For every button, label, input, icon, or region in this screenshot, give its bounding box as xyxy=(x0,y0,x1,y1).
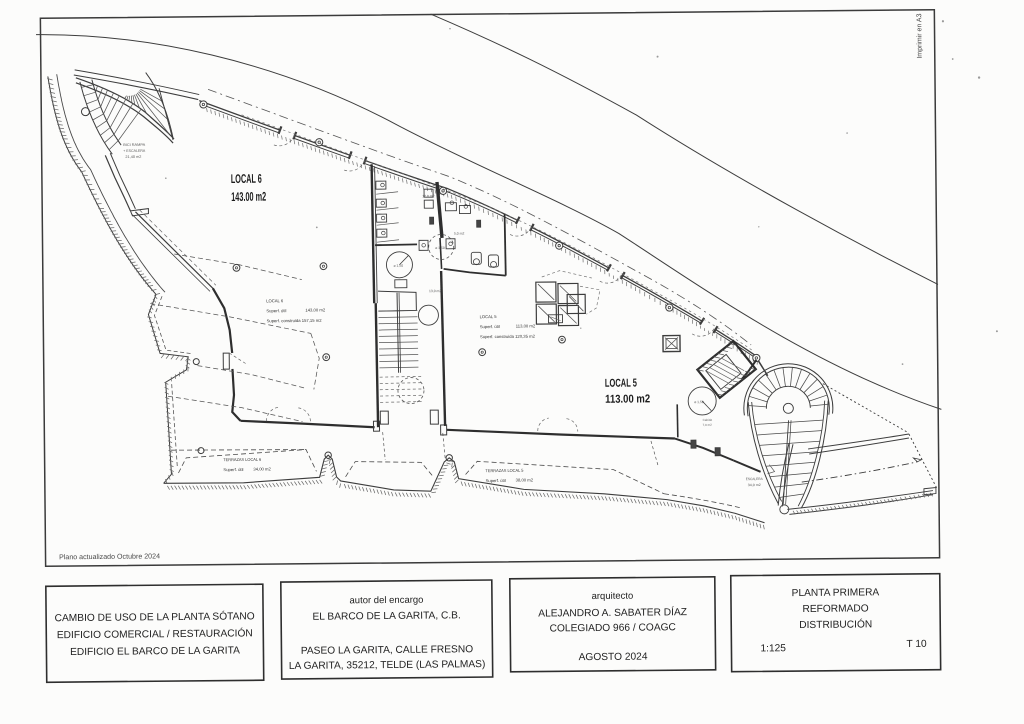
svg-text:143,00 m2: 143,00 m2 xyxy=(305,307,326,312)
svg-text:113.00 m2: 113.00 m2 xyxy=(605,393,650,405)
svg-text:38,00 m2: 38,00 m2 xyxy=(516,477,534,482)
svg-text:Superf. útil: Superf. útil xyxy=(480,324,500,329)
svg-text:Superf. construida 120,35 m2: Superf. construida 120,35 m2 xyxy=(480,334,536,340)
svg-text:T 10: T 10 xyxy=(906,639,927,650)
svg-text:LOCAL 6: LOCAL 6 xyxy=(231,172,262,186)
svg-text:TERRAZAS LOCAL 6: TERRAZAS LOCAL 6 xyxy=(223,457,262,462)
svg-text:5,0 m2: 5,0 m2 xyxy=(454,232,465,236)
svg-text:13,0 m2: 13,0 m2 xyxy=(429,289,441,293)
svg-text:Superf. construida 157,15 m2: Superf. construida 157,15 m2 xyxy=(267,318,323,324)
svg-text:PASEO LA GARITA, CALLE FRESNO: PASEO LA GARITA, CALLE FRESNO xyxy=(301,644,473,657)
svg-text:1:125: 1:125 xyxy=(760,643,786,654)
svg-text:12,0 m2: 12,0 m2 xyxy=(422,194,434,198)
svg-text:LOCAL 5: LOCAL 5 xyxy=(605,377,638,389)
svg-text:Superf. útil: Superf. útil xyxy=(486,478,506,483)
svg-text:34,00 m2: 34,00 m2 xyxy=(253,466,271,471)
svg-text:⌀ 1,50: ⌀ 1,50 xyxy=(435,246,445,250)
svg-text:7,0 m2: 7,0 m2 xyxy=(703,423,713,427)
svg-text:+ ESCALERA: + ESCALERA xyxy=(123,149,146,153)
svg-text:Superf. útil: Superf. útil xyxy=(223,467,243,472)
svg-text:21,40 m2: 21,40 m2 xyxy=(125,155,141,159)
svg-text:BICI RAMPA: BICI RAMPA xyxy=(123,143,146,147)
svg-text:143.00 m2: 143.00 m2 xyxy=(231,190,266,204)
svg-text:DISTRIBUCIÓN: DISTRIBUCIÓN xyxy=(799,617,872,631)
svg-text:TERRAZAS LOCAL 5: TERRAZAS LOCAL 5 xyxy=(485,468,524,473)
svg-text:⌀ 1,50: ⌀ 1,50 xyxy=(394,264,404,268)
svg-text:⌀ 1,50: ⌀ 1,50 xyxy=(694,400,704,404)
svg-text:113,00 m2: 113,00 m2 xyxy=(516,323,536,328)
svg-text:EDIFICIO EL BARCO DE LA GARITA: EDIFICIO EL BARCO DE LA GARITA xyxy=(70,645,240,658)
svg-text:EL BARCO DE LA GARITA, C.B.: EL BARCO DE LA GARITA, C.B. xyxy=(312,610,460,622)
svg-text:REFORMADO: REFORMADO xyxy=(802,603,868,615)
svg-text:arquitecto: arquitecto xyxy=(592,591,634,602)
svg-text:LA GARITA, 35212, TELDE (LAS P: LA GARITA, 35212, TELDE (LAS PALMAS) xyxy=(289,659,486,672)
svg-text:LOCAL 5: LOCAL 5 xyxy=(480,314,498,319)
svg-text:AGOSTO 2024: AGOSTO 2024 xyxy=(579,652,648,664)
svg-text:34,0 m2: 34,0 m2 xyxy=(748,483,761,487)
svg-text:LOCAL 6: LOCAL 6 xyxy=(266,298,284,303)
svg-text:Superf. útil: Superf. útil xyxy=(266,308,286,313)
svg-text:Plano actualizado Octubre 2024: Plano actualizado Octubre 2024 xyxy=(59,552,160,561)
svg-text:Cabida: Cabida xyxy=(703,418,713,422)
svg-text:autor del encargo: autor del encargo xyxy=(349,595,423,607)
svg-text:ESCALERA: ESCALERA xyxy=(746,477,764,481)
svg-text:Imprimir en A3: Imprimir en A3 xyxy=(916,13,923,58)
svg-text:COLEGIADO 966 / COAGC: COLEGIADO 966 / COAGC xyxy=(550,622,676,634)
svg-text:PLANTA PRIMERA: PLANTA PRIMERA xyxy=(792,587,880,599)
